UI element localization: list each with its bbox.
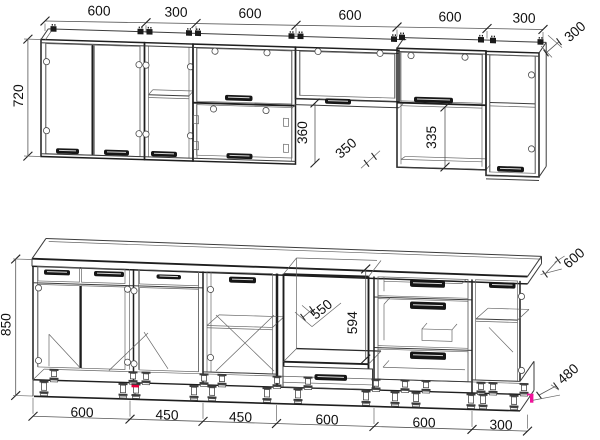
svg-text:600: 600 <box>238 6 261 21</box>
svg-text:850: 850 <box>0 313 14 337</box>
svg-text:600: 600 <box>412 415 435 431</box>
svg-text:594: 594 <box>345 311 360 335</box>
svg-text:600: 600 <box>338 8 361 23</box>
svg-text:300: 300 <box>512 10 535 25</box>
svg-text:450: 450 <box>155 407 178 423</box>
svg-text:600: 600 <box>315 412 338 428</box>
svg-text:600: 600 <box>87 3 110 18</box>
svg-text:300: 300 <box>164 5 187 20</box>
svg-text:600: 600 <box>70 405 93 421</box>
svg-text:600: 600 <box>438 9 461 24</box>
svg-text:360: 360 <box>295 121 310 145</box>
svg-text:300: 300 <box>489 417 512 433</box>
svg-text:450: 450 <box>229 409 252 425</box>
svg-text:335: 335 <box>424 125 439 149</box>
svg-text:720: 720 <box>11 84 26 108</box>
